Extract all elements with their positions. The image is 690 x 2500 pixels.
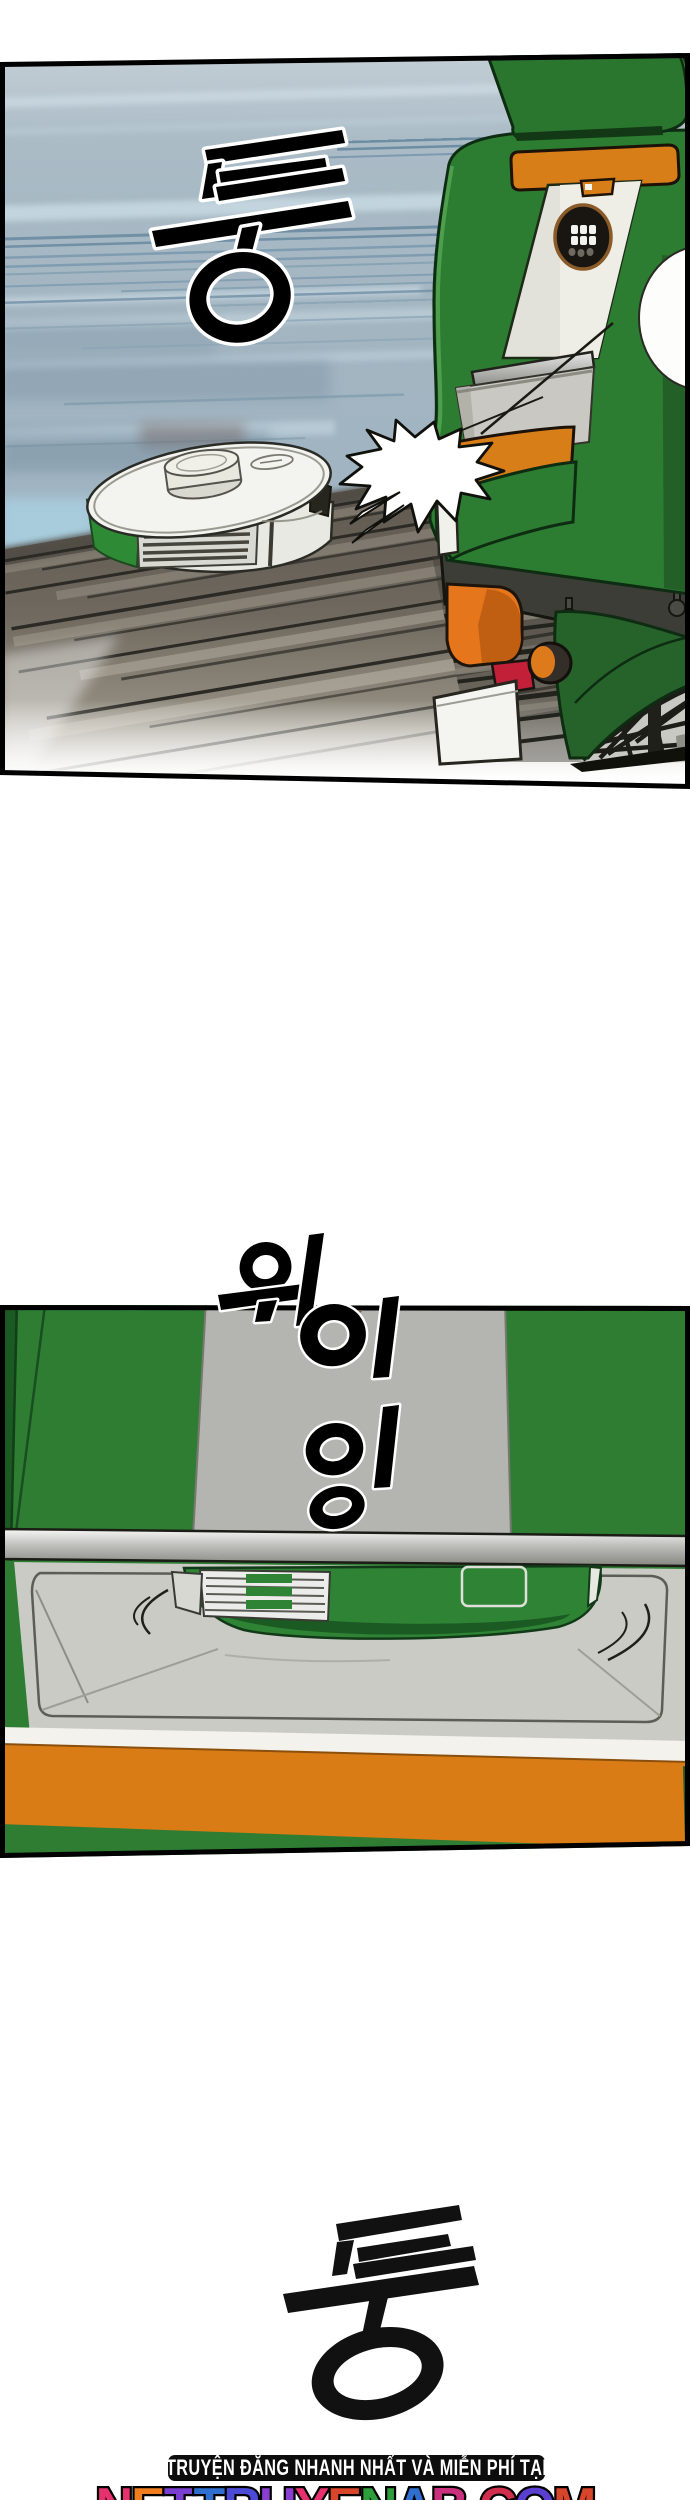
svg-text:NETTRUYENAB.COM: NETTRUYENAB.COM bbox=[96, 2478, 595, 2500]
